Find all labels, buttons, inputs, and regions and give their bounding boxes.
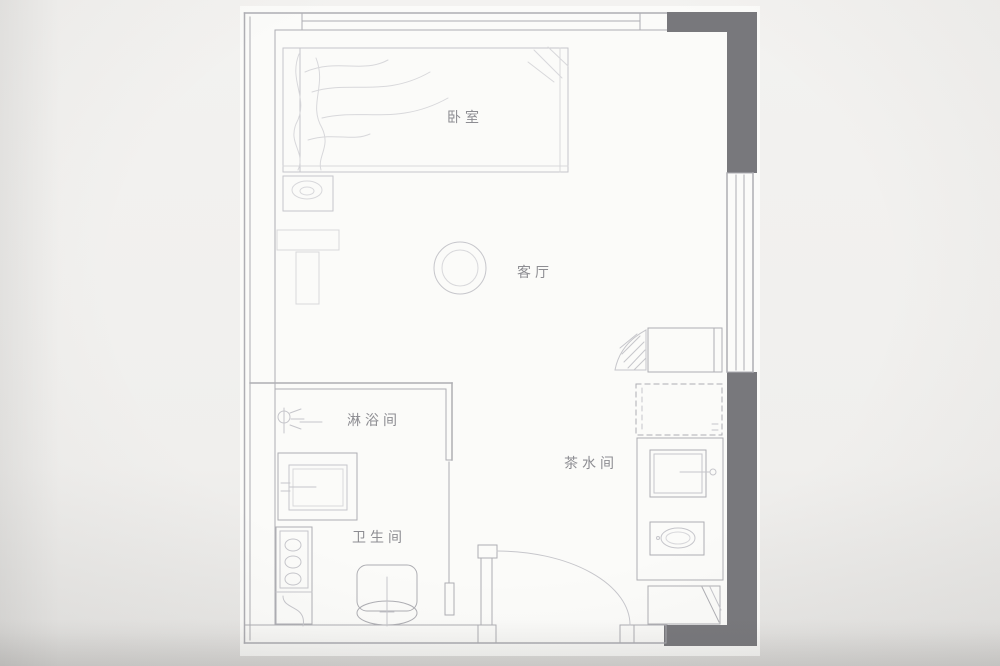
room-label-shower-room: 淋浴间: [347, 410, 401, 430]
room-label-living-room: 客厅: [517, 262, 553, 282]
floor-plan-drawing: [0, 0, 1000, 666]
room-label-pantry: 茶水间: [564, 453, 618, 473]
floor-plan-canvas: 卧室 客厅 淋浴间 卫生间 茶水间: [0, 0, 1000, 666]
room-label-bedroom: 卧室: [447, 107, 483, 127]
plan-paper: [240, 6, 760, 656]
room-label-bathroom: 卫生间: [352, 527, 406, 547]
